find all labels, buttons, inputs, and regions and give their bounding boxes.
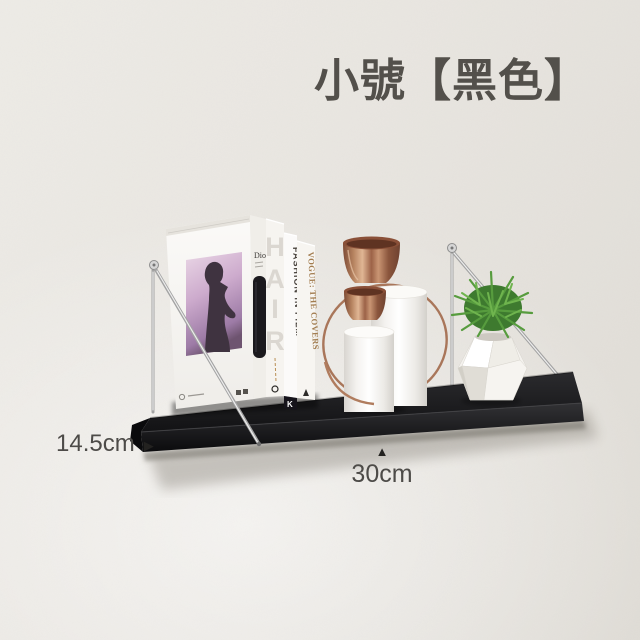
copper-bowl-lower — [344, 286, 386, 320]
hair-letter: I — [271, 294, 279, 324]
publisher-logo-k: K — [287, 400, 293, 409]
dimension-width-label: ▲ 30cm — [344, 445, 420, 489]
depth-value: 14.5cm — [56, 430, 135, 458]
copper-bowl-top — [343, 237, 400, 284]
arrow-right-icon: ▶ — [144, 438, 154, 454]
book-dior-cover-art — [186, 252, 242, 356]
books-group: Dior H — [166, 215, 321, 410]
dimension-depth-label: 14.5cm ▶ — [56, 430, 154, 458]
hair-letter: A — [265, 264, 285, 294]
hair-letter: H — [265, 232, 285, 262]
book-dior-spine-black-bar — [253, 276, 266, 358]
hair-letter: R — [265, 326, 285, 356]
book-hair: H A I R — [265, 219, 285, 397]
arrow-up-icon: ▲ — [376, 445, 389, 458]
width-value: 30cm — [351, 460, 412, 489]
product-photo: Dior H — [0, 0, 640, 640]
product-variant-title: 小號【黑色】 — [314, 44, 590, 109]
